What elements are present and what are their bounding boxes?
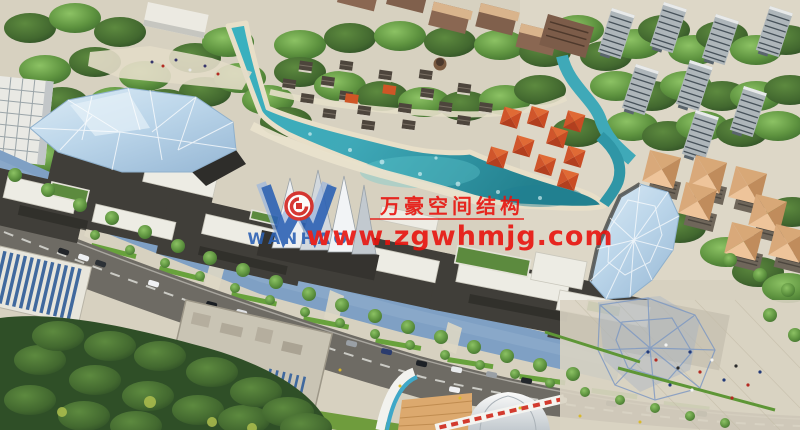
rendering-image: WANHAO 万豪空间结构 www.zgwhmjg.com bbox=[0, 0, 800, 430]
water-tower bbox=[434, 58, 447, 71]
orange-cottage bbox=[345, 93, 359, 104]
southeast-plaza bbox=[545, 296, 800, 430]
watermark-website: www.zgwhmjg.com bbox=[306, 221, 613, 252]
orange-cottage bbox=[382, 84, 396, 95]
watermark-company-name: 万豪空间结构 bbox=[379, 194, 524, 218]
scene: WANHAO 万豪空间结构 www.zgwhmjg.com bbox=[0, 0, 800, 430]
